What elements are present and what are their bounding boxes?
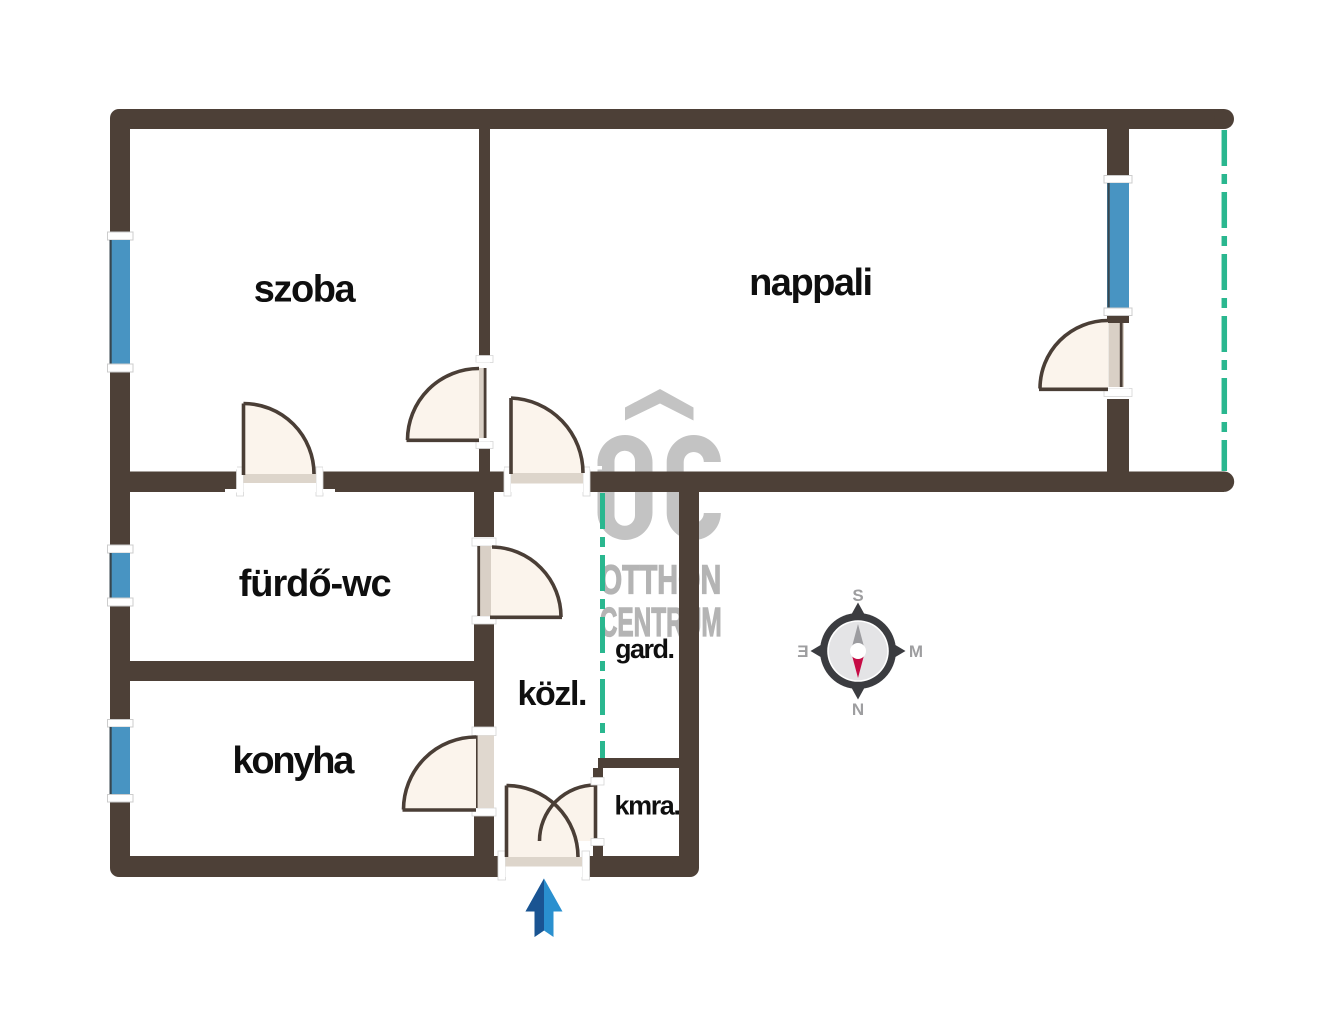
svg-text:konyha: konyha (232, 740, 355, 782)
svg-text:gard.: gard. (615, 634, 675, 664)
svg-text:közl.: közl. (518, 675, 588, 713)
svg-text:S: S (852, 586, 863, 605)
svg-text:OTTHON: OTTHON (600, 557, 722, 603)
svg-text:szoba: szoba (254, 269, 357, 311)
svg-text:fürdő-wc: fürdő-wc (239, 563, 392, 605)
svg-text:N: N (852, 700, 864, 719)
svg-text:nappali: nappali (749, 262, 873, 304)
svg-text:E: E (797, 642, 808, 661)
svg-text:M: M (909, 642, 923, 661)
svg-text:kmra.: kmra. (614, 791, 681, 821)
